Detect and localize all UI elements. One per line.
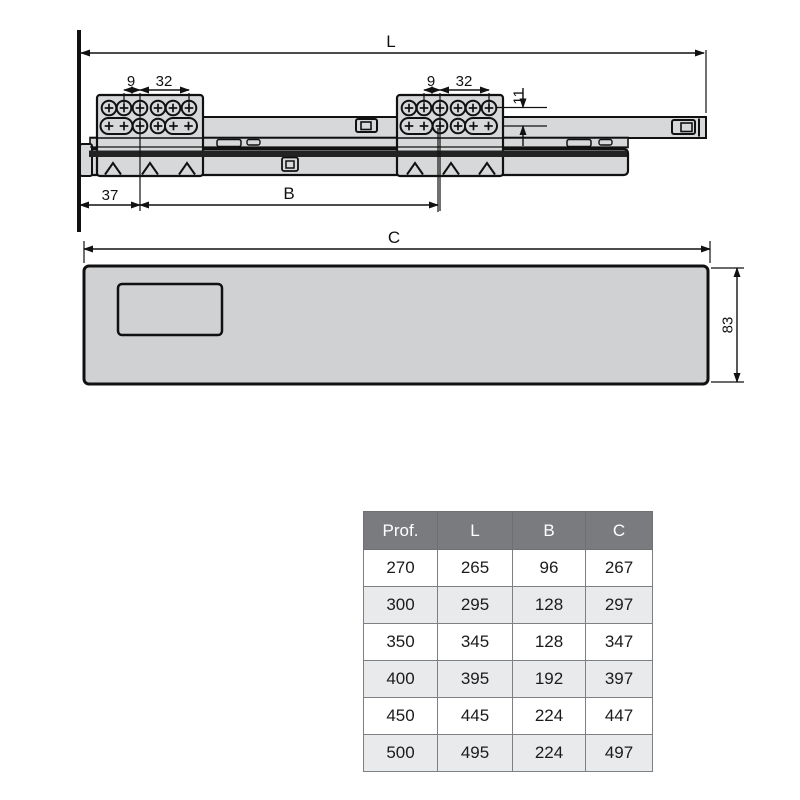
table-cell: 395 [438, 661, 513, 698]
dark-band [89, 151, 627, 158]
table-row: 350345128347 [364, 624, 653, 661]
table-cell: 397 [586, 661, 653, 698]
table-cell: 224 [513, 735, 586, 772]
table-header-row: Prof.LBC [364, 512, 653, 550]
table-cell: 497 [586, 735, 653, 772]
table-row: 300295128297 [364, 587, 653, 624]
technical-drawing: L 9 32 9 32 11 37 B [0, 0, 800, 470]
dimensions-table-grid: Prof.LBC 2702659626730029512829735034512… [363, 511, 653, 772]
table-header-cell: Prof. [364, 512, 438, 550]
dim-label-32-right: 32 [456, 73, 473, 90]
table-cell: 400 [364, 661, 438, 698]
dim-label-9-left: 9 [127, 73, 135, 90]
dim-label-32-left: 32 [156, 73, 173, 90]
dim-label-L: L [386, 32, 395, 51]
table-cell: 265 [438, 550, 513, 587]
table-cell: 445 [438, 698, 513, 735]
table-row: 500495224497 [364, 735, 653, 772]
table-body: 2702659626730029512829735034512834740039… [364, 550, 653, 772]
table-header-cell: B [513, 512, 586, 550]
table-cell: 300 [364, 587, 438, 624]
table-row: 27026596267 [364, 550, 653, 587]
dim-label-83: 83 [719, 317, 736, 334]
table-cell: 450 [364, 698, 438, 735]
table-cell: 500 [364, 735, 438, 772]
table-cell: 192 [513, 661, 586, 698]
dim-label-C: C [388, 228, 400, 247]
dim-label-37: 37 [102, 187, 119, 204]
dim-label-11: 11 [510, 89, 527, 105]
panel-drawing: C 83 [84, 228, 744, 384]
dim-label-B: B [283, 184, 294, 203]
table-cell: 295 [438, 587, 513, 624]
table-cell: 224 [513, 698, 586, 735]
table-header: Prof.LBC [364, 512, 653, 550]
table-header-cell: C [586, 512, 653, 550]
table-cell: 96 [513, 550, 586, 587]
table-cell: 297 [586, 587, 653, 624]
dim-label-9-right: 9 [427, 73, 435, 90]
table-cell: 350 [364, 624, 438, 661]
table-cell: 447 [586, 698, 653, 735]
table-row: 400395192397 [364, 661, 653, 698]
table-cell: 345 [438, 624, 513, 661]
table-cell: 128 [513, 624, 586, 661]
dimensions-table: Prof.LBC 2702659626730029512829735034512… [363, 511, 652, 772]
table-header-cell: L [438, 512, 513, 550]
table-cell: 347 [586, 624, 653, 661]
table-cell: 270 [364, 550, 438, 587]
table-cell: 267 [586, 550, 653, 587]
table-cell: 128 [513, 587, 586, 624]
table-row: 450445224447 [364, 698, 653, 735]
table-cell: 495 [438, 735, 513, 772]
